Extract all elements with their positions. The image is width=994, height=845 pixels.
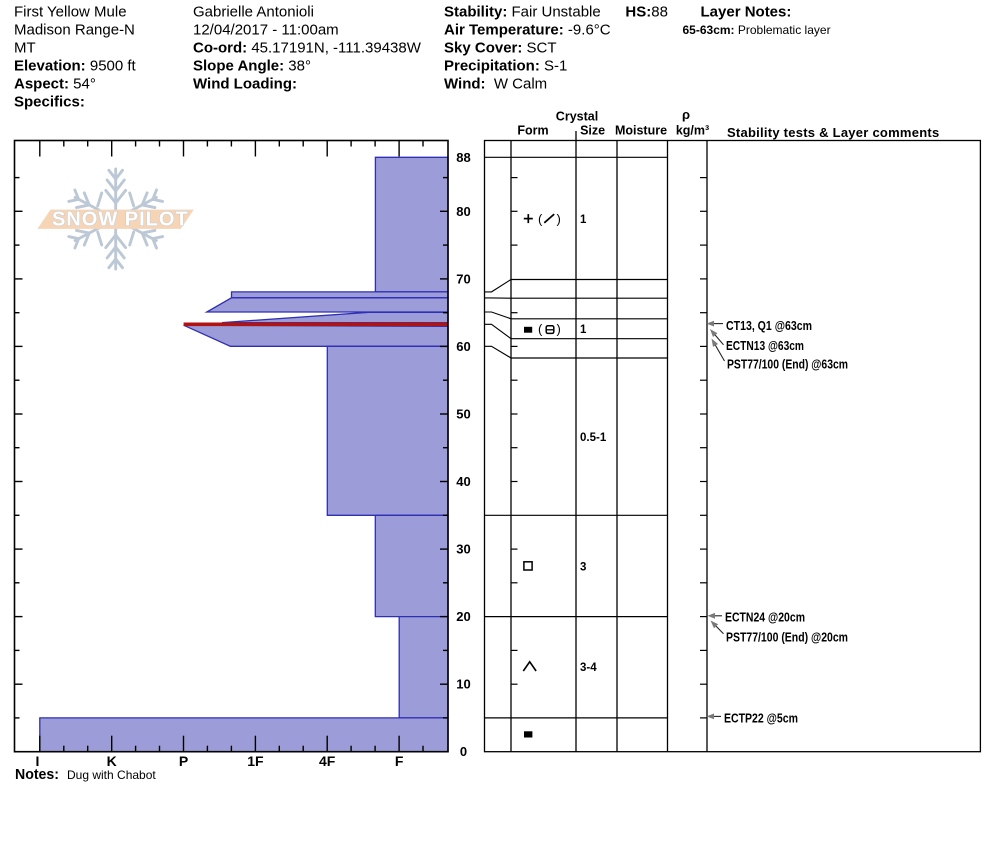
svg-text:Wind Loading:: Wind Loading: <box>193 76 297 93</box>
svg-text:Crystal: Crystal <box>556 110 598 124</box>
svg-text:1: 1 <box>580 324 587 336</box>
svg-text:Stability tests & Layer commen: Stability tests & Layer comments <box>727 125 939 140</box>
svg-text:Slope Angle: 38°: Slope Angle: 38° <box>193 58 311 75</box>
svg-text:Air Temperature: -9.6°C: Air Temperature: -9.6°C <box>444 22 611 39</box>
svg-text:MT: MT <box>14 40 36 57</box>
svg-text:): ) <box>557 211 561 226</box>
svg-text:(: ( <box>538 211 543 226</box>
svg-text:P: P <box>179 753 188 769</box>
svg-text:Stability: Fair Unstable: Stability: Fair Unstable <box>444 4 601 21</box>
svg-text:F: F <box>395 753 404 769</box>
svg-text:Dug with Chabot: Dug with Chabot <box>67 768 156 782</box>
svg-text:10: 10 <box>456 677 470 692</box>
svg-text:K: K <box>107 753 117 769</box>
svg-text:40: 40 <box>456 474 470 489</box>
svg-text:ECTN13 @63cm: ECTN13 @63cm <box>726 338 804 353</box>
svg-text:Wind: W Calm: Wind: W Calm <box>444 76 547 93</box>
svg-text:Madison Range-N: Madison Range-N <box>14 22 135 39</box>
svg-text:Moisture: Moisture <box>615 124 667 138</box>
svg-text:70: 70 <box>456 271 470 286</box>
svg-text:Co-ord: 45.17191N, -111.39438W: Co-ord: 45.17191N, -111.39438W <box>193 40 422 57</box>
svg-text:20: 20 <box>456 609 470 624</box>
svg-text:SNOW PILOT: SNOW PILOT <box>52 209 189 231</box>
svg-text:Precipitation: S-1: Precipitation: S-1 <box>444 58 567 75</box>
svg-text:50: 50 <box>456 407 470 422</box>
svg-text:HS:88: HS:88 <box>625 4 668 21</box>
svg-text:PST77/100 (End) @20cm: PST77/100 (End) @20cm <box>726 630 848 645</box>
svg-text:4F: 4F <box>319 753 336 769</box>
svg-text:0.5-1: 0.5-1 <box>580 432 607 444</box>
svg-text:1F: 1F <box>247 753 264 769</box>
svg-text:kg/m³: kg/m³ <box>676 124 709 138</box>
svg-text:3: 3 <box>580 562 586 574</box>
svg-text:Elevation: 9500 ft: Elevation: 9500 ft <box>14 58 137 75</box>
svg-text:ECTN24 @20cm: ECTN24 @20cm <box>725 610 805 625</box>
svg-text:3-4: 3-4 <box>580 662 597 674</box>
svg-text:Sky Cover: SCT: Sky Cover: SCT <box>444 40 557 57</box>
svg-text:ECTP22 @5cm: ECTP22 @5cm <box>724 711 798 726</box>
svg-text:80: 80 <box>456 204 470 219</box>
svg-text:CT13, Q1 @63cm: CT13, Q1 @63cm <box>726 318 812 333</box>
svg-text:Layer Notes:: Layer Notes: <box>701 4 792 21</box>
svg-text:ρ: ρ <box>682 107 690 122</box>
svg-text:60: 60 <box>456 339 470 354</box>
svg-text:Aspect: 54°: Aspect: 54° <box>14 76 96 93</box>
svg-text:Size: Size <box>580 124 605 138</box>
svg-text:Specifics:: Specifics: <box>14 94 85 111</box>
svg-text:0: 0 <box>460 744 467 759</box>
svg-text:): ) <box>557 321 561 336</box>
svg-text:(: ( <box>538 321 543 336</box>
svg-text:Form: Form <box>517 124 548 138</box>
svg-text:PST77/100 (End) @63cm: PST77/100 (End) @63cm <box>727 357 848 372</box>
svg-text:88: 88 <box>456 150 470 165</box>
svg-text:1: 1 <box>580 214 587 226</box>
svg-text:30: 30 <box>456 542 470 557</box>
svg-text:First Yellow Mule: First Yellow Mule <box>14 4 127 21</box>
svg-text:Gabrielle Antonioli: Gabrielle Antonioli <box>193 4 314 21</box>
svg-text:65-63cm: Problematic layer: 65-63cm: Problematic layer <box>683 23 831 37</box>
svg-text:12/04/2017 - 11:00am: 12/04/2017 - 11:00am <box>193 22 339 39</box>
svg-text:Notes:: Notes: <box>15 767 59 783</box>
